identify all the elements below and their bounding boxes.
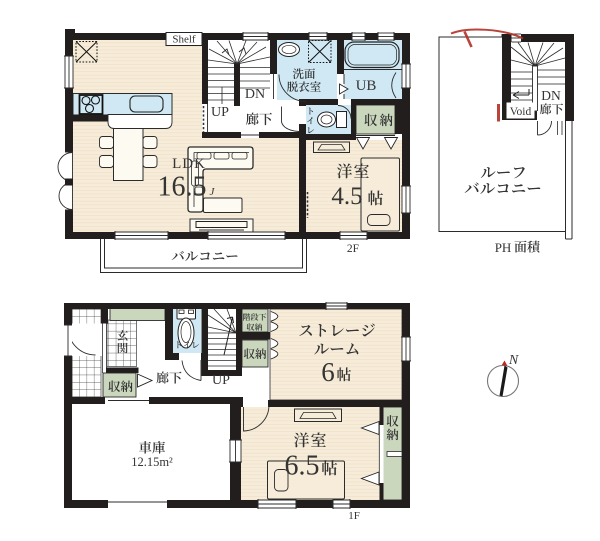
svg-text:Void: Void [510, 106, 532, 118]
svg-text:LDK: LDK [172, 156, 206, 172]
svg-text:DN: DN [541, 88, 561, 103]
svg-text:12.15m²: 12.15m² [131, 455, 173, 469]
svg-text:6.5: 6.5 [285, 451, 320, 482]
svg-text:N: N [508, 353, 519, 368]
svg-text:16.5: 16.5 [158, 172, 207, 203]
svg-text:2F: 2F [347, 243, 359, 255]
svg-text:1F: 1F [348, 510, 360, 522]
svg-text:DN: DN [245, 87, 265, 102]
svg-text:UP: UP [212, 373, 230, 388]
svg-text:PH: PH [495, 240, 512, 255]
svg-text:UP: UP [211, 105, 229, 120]
svg-text:Shelf: Shelf [172, 34, 196, 46]
svg-text:4.5: 4.5 [331, 183, 362, 210]
svg-text:UB: UB [356, 78, 377, 94]
svg-text:6: 6 [321, 357, 335, 387]
